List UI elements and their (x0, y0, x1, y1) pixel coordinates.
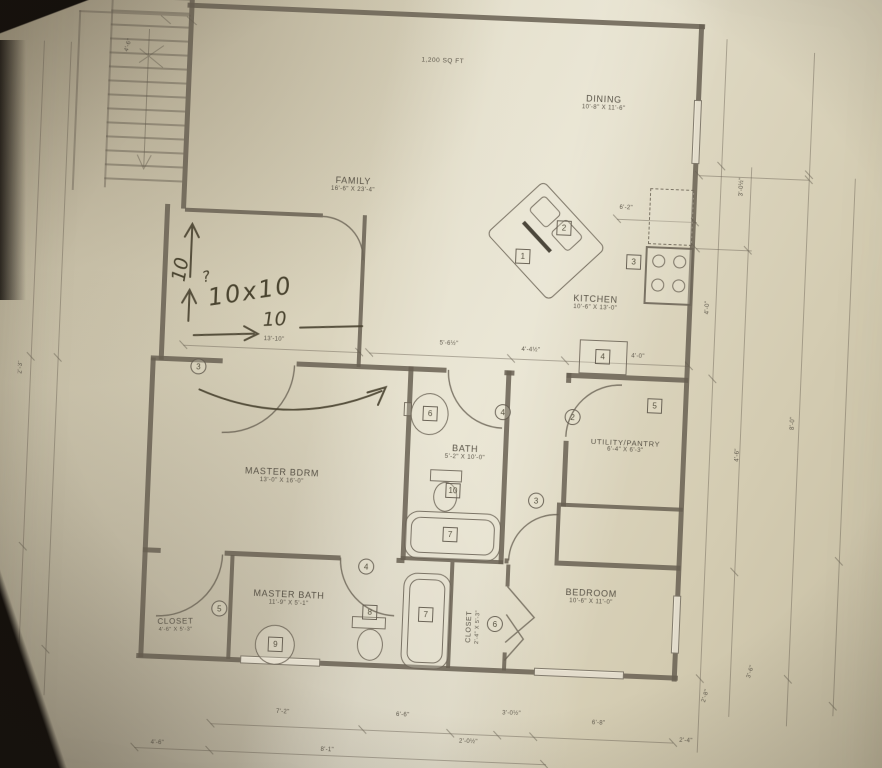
door-arc (446, 370, 504, 428)
plan-linework (0, 0, 882, 768)
door-arc (566, 383, 622, 439)
door-arc (156, 552, 223, 619)
door-arc (321, 216, 365, 260)
dimension-ticks (10, 10, 864, 768)
door-arc (222, 362, 295, 435)
pencil-arrow-right (194, 324, 259, 341)
pencil-arrow-up (181, 290, 196, 322)
door-arc (338, 557, 396, 615)
floor-plan-drawing: 1 2 3 4 5 6 7 7 8 9 10 3 4 2 3 4 5 6 DIN… (0, 0, 882, 768)
stair-direction-arrow (135, 29, 165, 170)
pencil-arrow-up (183, 224, 199, 278)
pencil-line (300, 324, 362, 331)
floor-plan-photo: 1 2 3 4 5 6 7 7 8 9 10 3 4 2 3 4 5 6 DIN… (0, 0, 882, 768)
door-arc (509, 513, 559, 563)
paper-sheet: 1 2 3 4 5 6 7 7 8 9 10 3 4 2 3 4 5 6 DIN… (0, 0, 882, 768)
bifold-door (504, 587, 535, 662)
pencil-curved-arrow (199, 379, 386, 413)
